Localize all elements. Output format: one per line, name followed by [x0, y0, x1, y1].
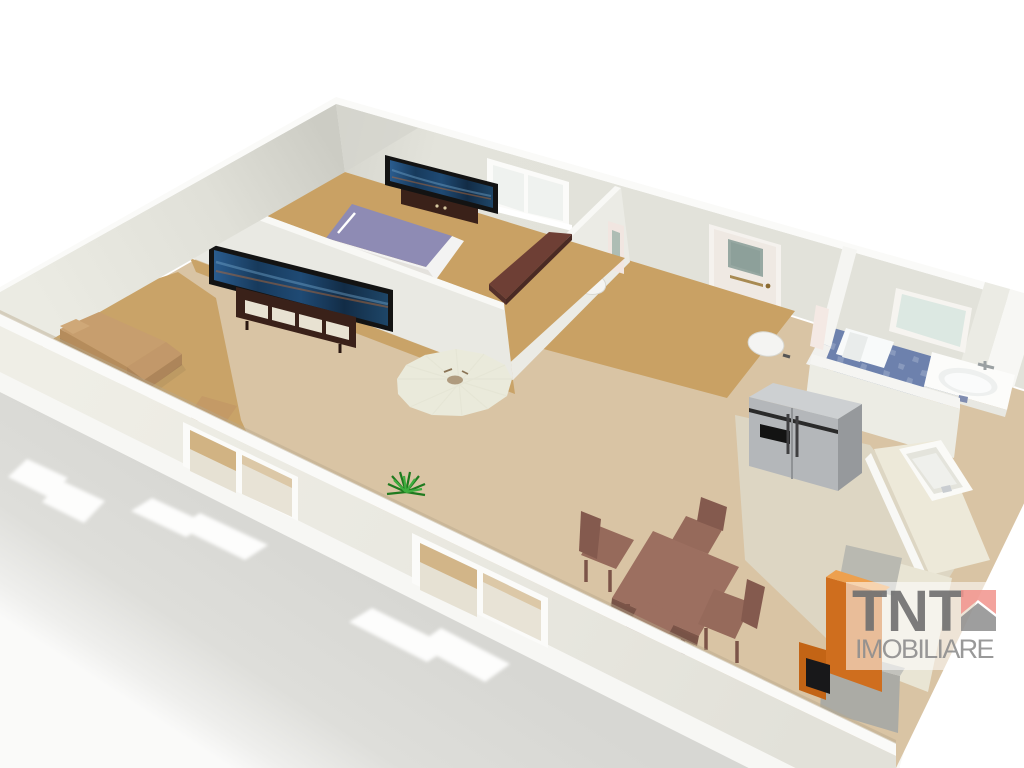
svg-text:IMOBILIARE: IMOBILIARE [855, 634, 995, 664]
